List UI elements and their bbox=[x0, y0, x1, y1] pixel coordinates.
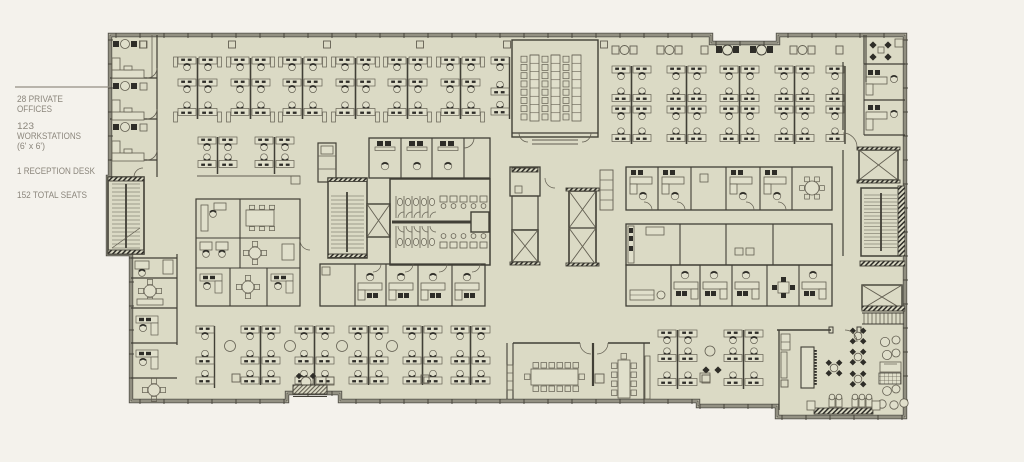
svg-text:(6' x 6'): (6' x 6') bbox=[17, 141, 45, 152]
svg-text:OFFICES: OFFICES bbox=[17, 104, 52, 115]
svg-text:1 RECEPTION DESK: 1 RECEPTION DESK bbox=[17, 166, 96, 177]
svg-text:152 TOTAL SEATS: 152 TOTAL SEATS bbox=[17, 190, 87, 201]
